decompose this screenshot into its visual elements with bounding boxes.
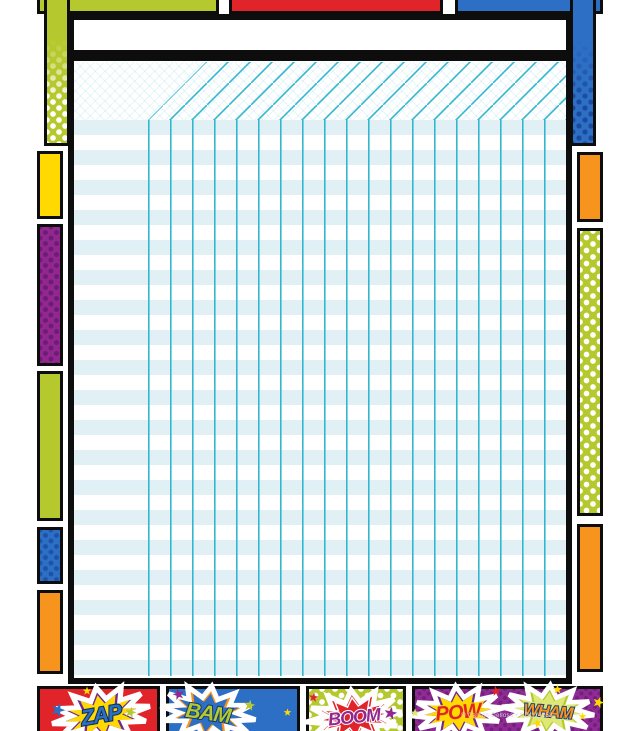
star-icon (490, 685, 502, 697)
star-icon (283, 708, 292, 717)
border-block-right-orange-top (577, 152, 603, 222)
copyright-text: © Carson-Dellosa • CD-114253 (437, 713, 577, 719)
incentive-chart-poster: ZAP BAM BOOM POW WHAM (0, 0, 640, 731)
border-block-left-orange (37, 590, 63, 674)
header-divider (74, 50, 566, 61)
star-shape (411, 708, 420, 716)
star-shape (490, 685, 502, 697)
star-shape (284, 708, 292, 715)
border-block-right-lime-dots (577, 228, 603, 516)
star-icon (592, 696, 605, 709)
border-block-left-purple-dots (37, 224, 63, 366)
title-writein-band (74, 20, 566, 50)
star-icon (50, 702, 66, 718)
wham-burst: WHAM (498, 682, 598, 731)
star-icon (243, 699, 256, 712)
chart-frame (68, 14, 572, 684)
star-icon (172, 688, 185, 701)
column-lines (148, 120, 566, 676)
star-icon (532, 718, 543, 729)
star-shape (579, 712, 587, 719)
star-shape (592, 695, 606, 709)
border-block-corner-blue-halftone (570, 0, 596, 146)
border-block-left-blue-dots (37, 527, 63, 584)
star-icon (82, 686, 92, 696)
star-icon (308, 692, 319, 703)
star-shape (383, 705, 398, 720)
border-block-corner-lime-halftone (44, 0, 70, 146)
grid-area (74, 61, 566, 678)
star-icon (578, 712, 587, 721)
star-shape (553, 685, 563, 694)
border-block-left-lime (37, 371, 63, 521)
star-shape (83, 686, 92, 694)
star-shape (172, 687, 186, 700)
star-shape (243, 699, 256, 711)
star-icon (552, 684, 563, 695)
star-shape (124, 705, 138, 718)
grid-lines (148, 61, 566, 678)
star-icon (383, 706, 398, 721)
star-shape (49, 701, 66, 718)
star-icon (124, 706, 137, 719)
student-name-column (74, 120, 148, 676)
border-block-left-yellow (37, 151, 63, 219)
name-slot-diagonals (148, 62, 566, 120)
star-shape (308, 692, 319, 702)
border-block-right-orange-bottom (577, 524, 603, 672)
star-icon (410, 708, 420, 718)
border-block-top-red (229, 0, 443, 14)
